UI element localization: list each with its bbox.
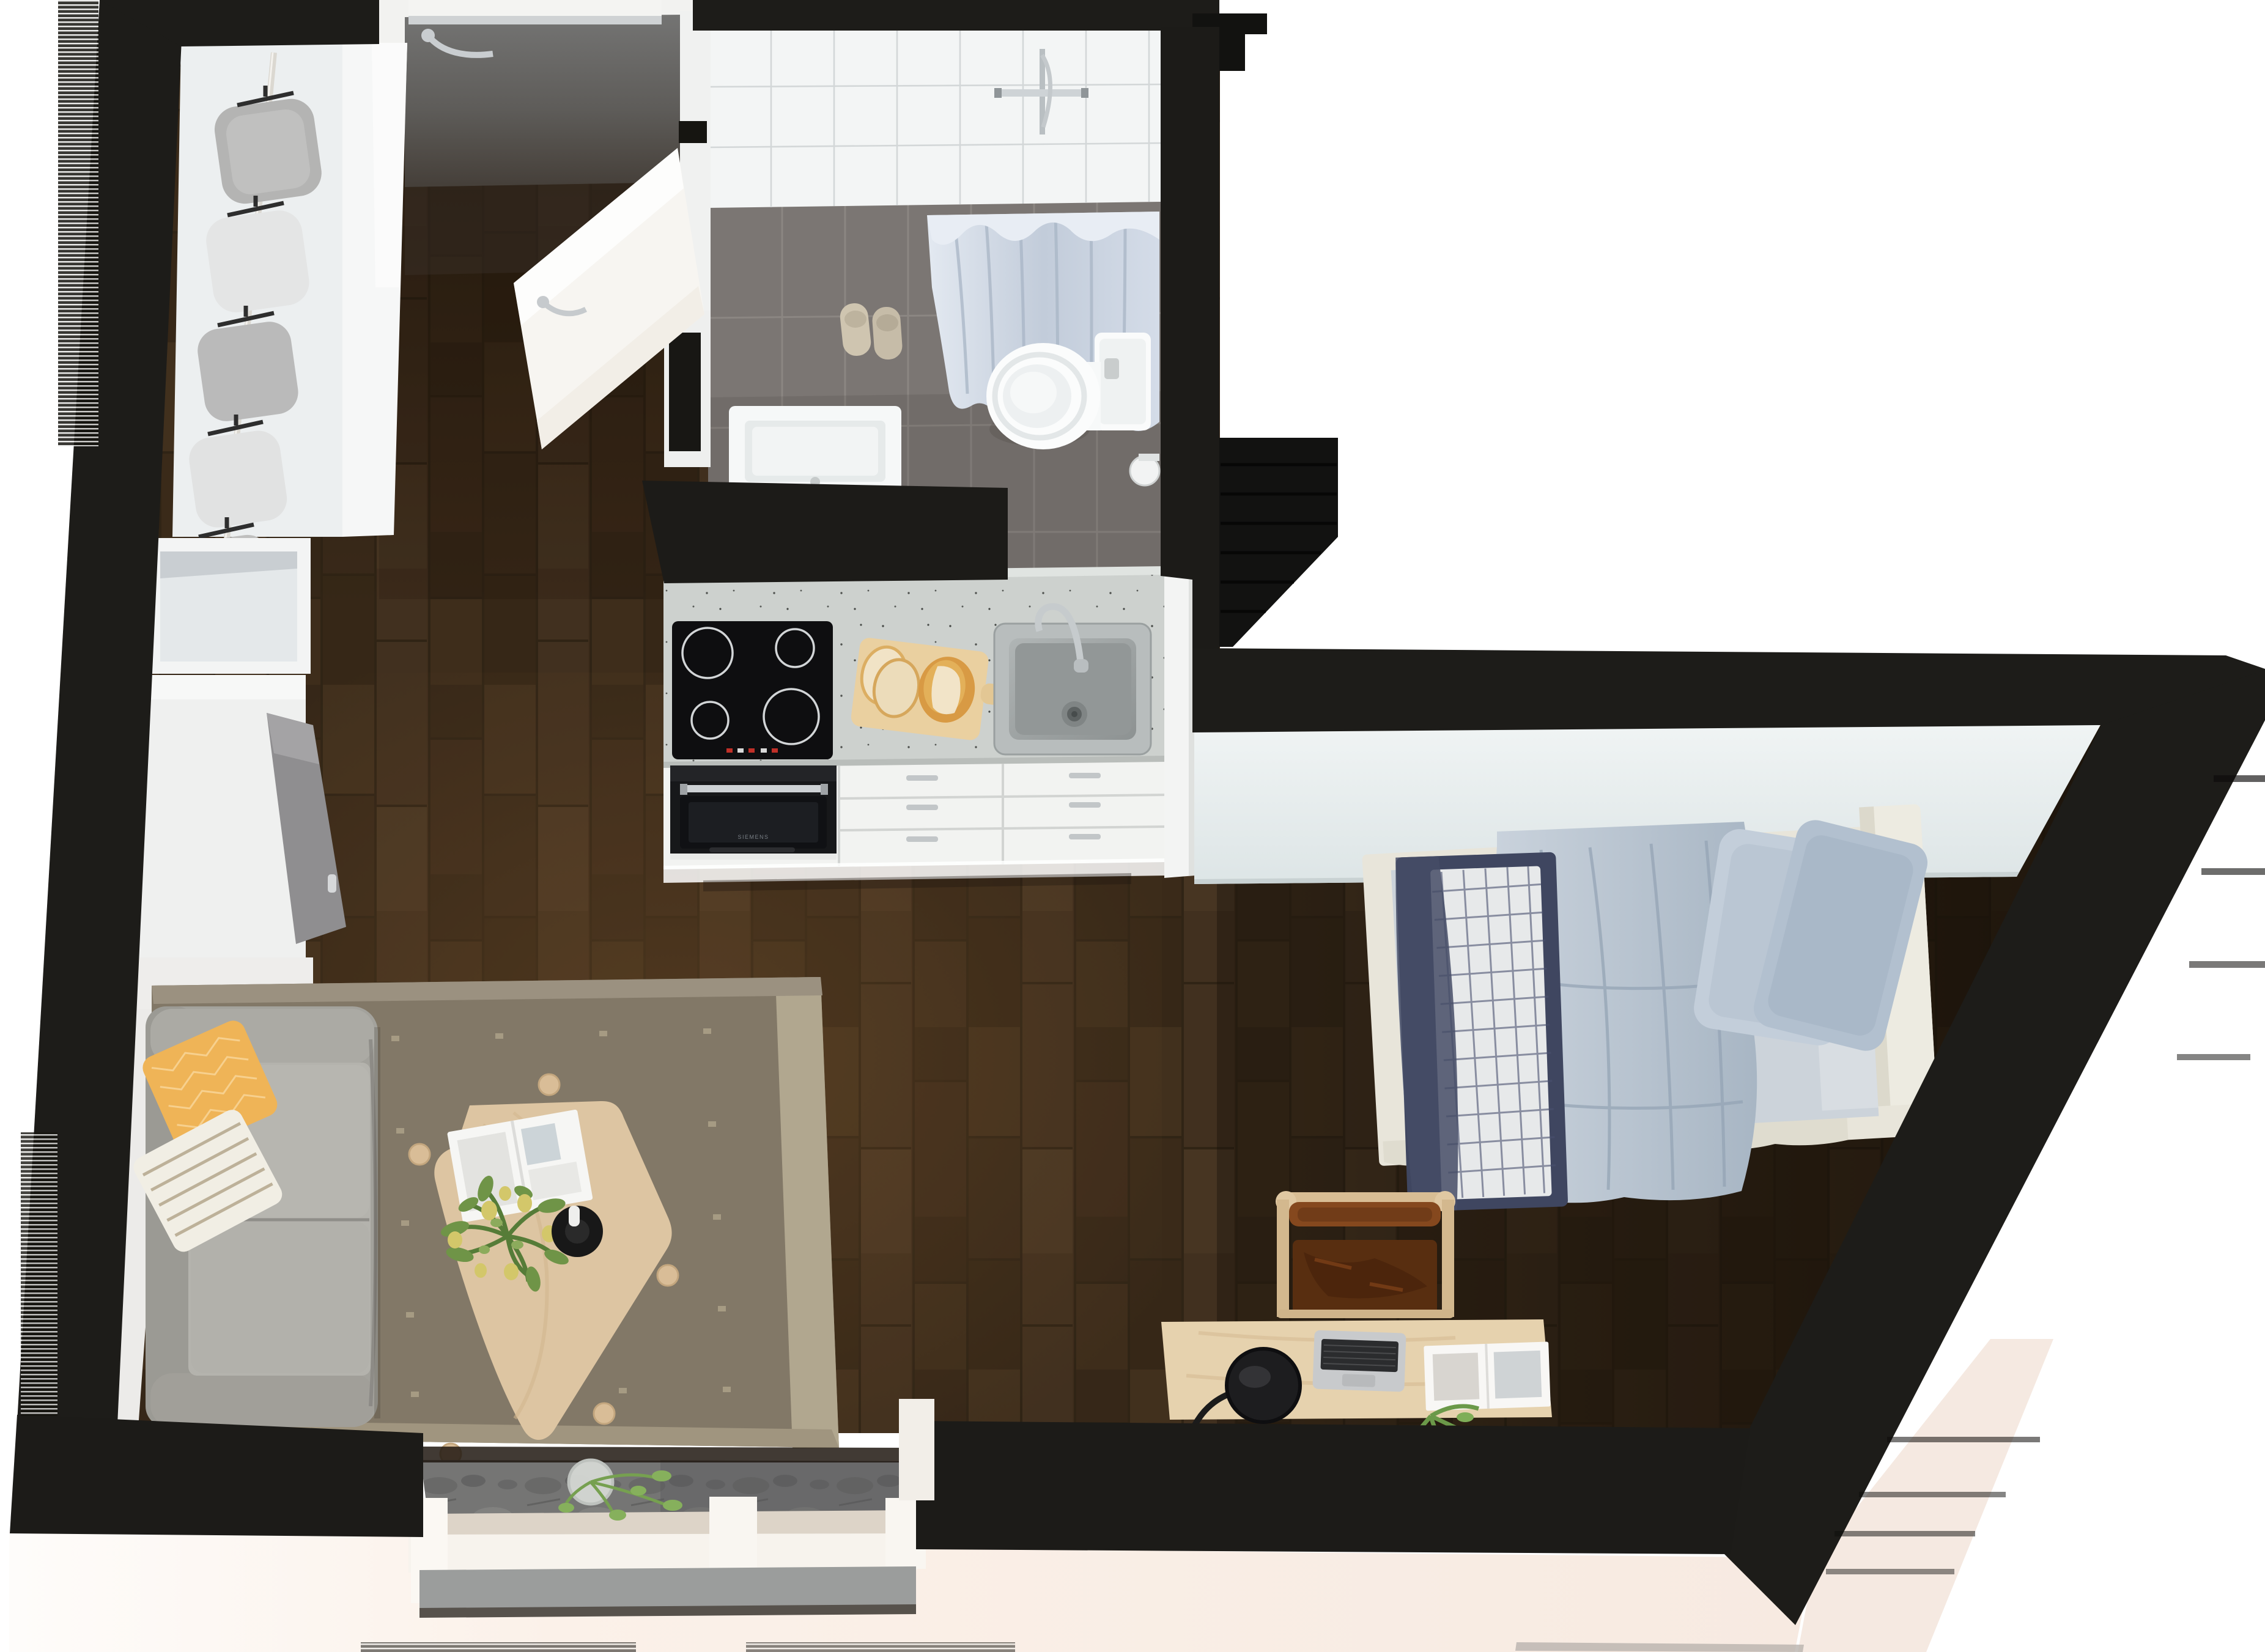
svg-text:SIEMENS: SIEMENS — [737, 834, 769, 840]
